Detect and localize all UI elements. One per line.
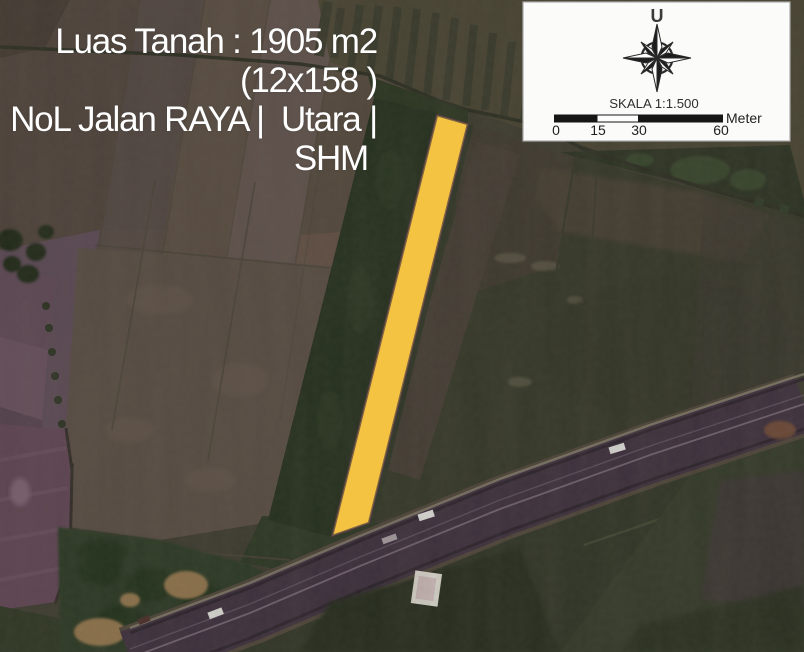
- svg-text:Meter: Meter: [726, 110, 762, 126]
- svg-text:15: 15: [590, 122, 606, 138]
- svg-text:60: 60: [713, 122, 729, 138]
- svg-text:0: 0: [552, 122, 560, 138]
- svg-text:30: 30: [631, 122, 647, 138]
- svg-text:SKALA 1:1.500: SKALA 1:1.500: [609, 96, 698, 111]
- svg-text:U: U: [651, 6, 664, 26]
